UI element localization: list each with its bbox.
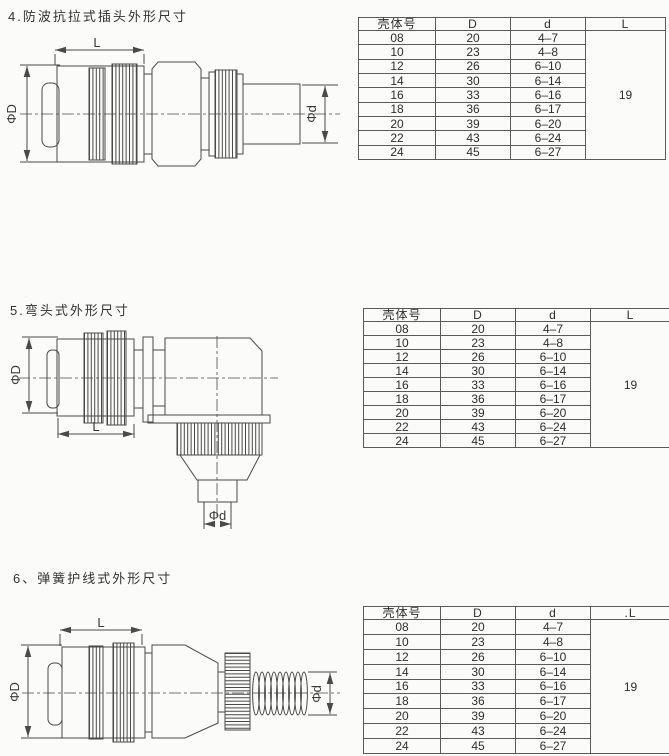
dim-label-phiD: ΦD [10, 365, 23, 385]
table-cell: 6–27 [516, 434, 591, 448]
table-cell: 6–10 [516, 350, 591, 364]
table-row: 08204–719 [364, 322, 669, 336]
step-1 [145, 653, 152, 732]
table-cell: 36 [436, 102, 511, 116]
table-cell: 16 [364, 679, 441, 694]
col-header-shell: 壳体号 [364, 607, 441, 620]
front-cap [48, 663, 62, 725]
table-cell: 4–7 [516, 322, 591, 336]
table-cell: 6–14 [516, 664, 591, 679]
merged-length-cell: 19 [586, 31, 666, 160]
table-cell: 18 [364, 392, 441, 406]
section-title: 6、弹簧护线式外形尺寸 [13, 568, 172, 587]
table-cell: 36 [441, 392, 516, 406]
col-header-d: d [511, 18, 586, 31]
table-cell: 33 [436, 88, 511, 102]
table-cell: 10 [364, 634, 441, 649]
table-cell: 6–10 [516, 649, 591, 664]
col-header-shell: 壳体号 [364, 309, 441, 322]
table-cell: 12 [364, 350, 441, 364]
table-cell: 6–17 [516, 392, 591, 406]
table-cell: 30 [436, 73, 511, 87]
elbow-plug-svg: ΦD L Φd [10, 328, 310, 540]
table-cell: 6–27 [516, 739, 591, 754]
table-header-row: 壳体号 D d L [359, 18, 666, 31]
table-cell: 6–10 [511, 59, 586, 73]
table-cell: 24 [359, 145, 436, 159]
table-cell: 6–20 [511, 116, 586, 130]
dimension-outer-diameter [20, 65, 60, 162]
col-header-shell: 壳体号 [359, 18, 436, 31]
table-cell: 16 [359, 88, 436, 102]
table-cell: 14 [364, 364, 441, 378]
knurl-ring-2 [112, 64, 137, 164]
dim-label-L: L [92, 419, 99, 434]
table-cell: 12 [359, 59, 436, 73]
dim-label-phiD: ΦD [10, 682, 22, 702]
table-cell: 23 [441, 634, 516, 649]
table-cell: 10 [364, 336, 441, 350]
section-title: 4.防波抗拉式插头外形尺寸 [8, 6, 188, 25]
drawing-spring-plug: L ΦD Φd [10, 608, 350, 756]
section-spring-plug: 6、弹簧护线式外形尺寸 [0, 563, 669, 756]
table-cell: 6–14 [516, 364, 591, 378]
table-cell: 08 [364, 322, 441, 336]
knurl-ring-3 [225, 653, 250, 730]
table-cell: 4–8 [516, 336, 591, 350]
table-cell: 30 [441, 364, 516, 378]
table-cell: 6–17 [516, 694, 591, 709]
table-cell: 45 [441, 434, 516, 448]
table-cell: 23 [436, 45, 511, 59]
dimension-length [60, 630, 142, 646]
taper-section [180, 455, 260, 480]
step-1 [134, 350, 143, 408]
elbow-flange [148, 415, 270, 423]
elbow-housing [165, 338, 262, 415]
table-cell: 6–24 [516, 420, 591, 434]
table-cell: 43 [441, 420, 516, 434]
cone-body [152, 645, 218, 738]
col-header-D: D [441, 309, 516, 322]
table-cell: 33 [441, 378, 516, 392]
col-header-d: d [516, 309, 591, 322]
table-cell: 6–16 [511, 88, 586, 102]
table-cell: 10 [359, 45, 436, 59]
table-cell: 14 [364, 664, 441, 679]
merged-length-cell: 19 [591, 620, 669, 754]
table-cell: 26 [441, 649, 516, 664]
knurl-ring-2 [113, 643, 134, 742]
table-cell: 12 [364, 649, 441, 664]
table-row: 08204–719 [359, 31, 666, 45]
col-header-d: d [516, 607, 591, 620]
table-cell: 39 [441, 406, 516, 420]
section-title: 5.弯头式外形尺寸 [10, 300, 130, 319]
table-cell: 4–7 [516, 620, 591, 635]
dimension-length [55, 50, 144, 65]
col-header-L: L [591, 309, 669, 322]
table-cell: 20 [364, 406, 441, 420]
dim-label-phiD: ΦD [4, 104, 19, 124]
table-cell: 4–7 [511, 31, 586, 45]
connector-neck [218, 672, 225, 712]
table-cell: 45 [441, 739, 516, 754]
table-cell: 20 [359, 116, 436, 130]
front-cap [42, 83, 59, 147]
lower-block [198, 480, 237, 502]
merged-length-cell: 19 [591, 322, 669, 448]
table-cell: 08 [364, 620, 441, 635]
table-cell: 08 [359, 31, 436, 45]
dimension-table-spring: 壳体号 D d .L 08204–71910234–812266–1014306… [363, 606, 669, 754]
table-cell: 4–8 [511, 45, 586, 59]
table-cell: 39 [436, 116, 511, 130]
table-row: 08204–719 [364, 620, 669, 635]
table-cell: 20 [441, 620, 516, 635]
section-elbow-plug: 5.弯头式外形尺寸 [0, 295, 669, 563]
table-cell: 18 [359, 102, 436, 116]
table-cell: 6–24 [511, 131, 586, 145]
table-cell: 6–20 [516, 406, 591, 420]
table-cell: 6–16 [516, 679, 591, 694]
dimension-table-straight: 壳体号 D d L 08204–71910234–812266–1014306–… [358, 17, 666, 160]
dim-label-phid: Φd [304, 105, 319, 123]
table-cell: 43 [436, 131, 511, 145]
main-body [57, 339, 134, 416]
table-cell: 33 [441, 679, 516, 694]
collar-ring [143, 337, 153, 422]
table-cell: 36 [441, 694, 516, 709]
table-cell: 22 [364, 420, 441, 434]
table-cell: 18 [364, 694, 441, 709]
drawing-elbow-plug: ΦD L Φd [10, 328, 310, 540]
table-cell: 22 [364, 724, 441, 739]
dimension-outer-diameter [22, 337, 58, 413]
drawing-straight-plug: L ΦD Φd [4, 38, 349, 183]
table-header-row: 壳体号 D d .L [364, 607, 669, 620]
table-cell: 30 [441, 664, 516, 679]
table-cell: 6–14 [511, 73, 586, 87]
table-cell: 20 [441, 322, 516, 336]
spring-plug-svg: L ΦD Φd [10, 608, 350, 756]
table-cell: 16 [364, 378, 441, 392]
table-cell: 6–24 [516, 724, 591, 739]
document-page: 4.防波抗拉式插头外形尺寸 [0, 0, 669, 756]
col-header-L: .L [591, 607, 669, 620]
table-cell: 45 [436, 145, 511, 159]
straight-plug-svg: L ΦD Φd [4, 38, 349, 183]
table-cell: 24 [364, 434, 441, 448]
dim-label-L: L [97, 615, 104, 630]
table-cell: 6–16 [516, 378, 591, 392]
table-cell: 14 [359, 73, 436, 87]
table-cell: 26 [436, 59, 511, 73]
dimension-outer-diameter [21, 645, 62, 738]
table-header-row: 壳体号 D d L [364, 309, 669, 322]
table-cell: 39 [441, 709, 516, 724]
table-cell: 20 [436, 31, 511, 45]
table-cell: 20 [364, 709, 441, 724]
dim-label-phid: Φd [209, 508, 227, 523]
table-cell: 23 [441, 336, 516, 350]
table-cell: 4–8 [516, 634, 591, 649]
table-cell: 6–20 [516, 709, 591, 724]
section-straight-plug: 4.防波抗拉式插头外形尺寸 [0, 0, 669, 295]
dim-label-phid: Φd [309, 685, 324, 703]
table-cell: 24 [364, 739, 441, 754]
col-header-D: D [441, 607, 516, 620]
knurl-ring-down [177, 423, 262, 455]
spring-coil [253, 672, 308, 715]
dimension-table-elbow: 壳体号 D d L 08204–71910234–812266–1014306–… [363, 308, 669, 448]
table-cell: 22 [359, 131, 436, 145]
table-cell: 26 [441, 350, 516, 364]
table-cell: 6–17 [511, 102, 586, 116]
col-header-L: L [586, 18, 666, 31]
knurl-ring-1 [89, 646, 103, 739]
dim-label-L: L [93, 38, 100, 50]
table-cell: 6–27 [511, 145, 586, 159]
table-cell: 43 [441, 724, 516, 739]
col-header-D: D [436, 18, 511, 31]
